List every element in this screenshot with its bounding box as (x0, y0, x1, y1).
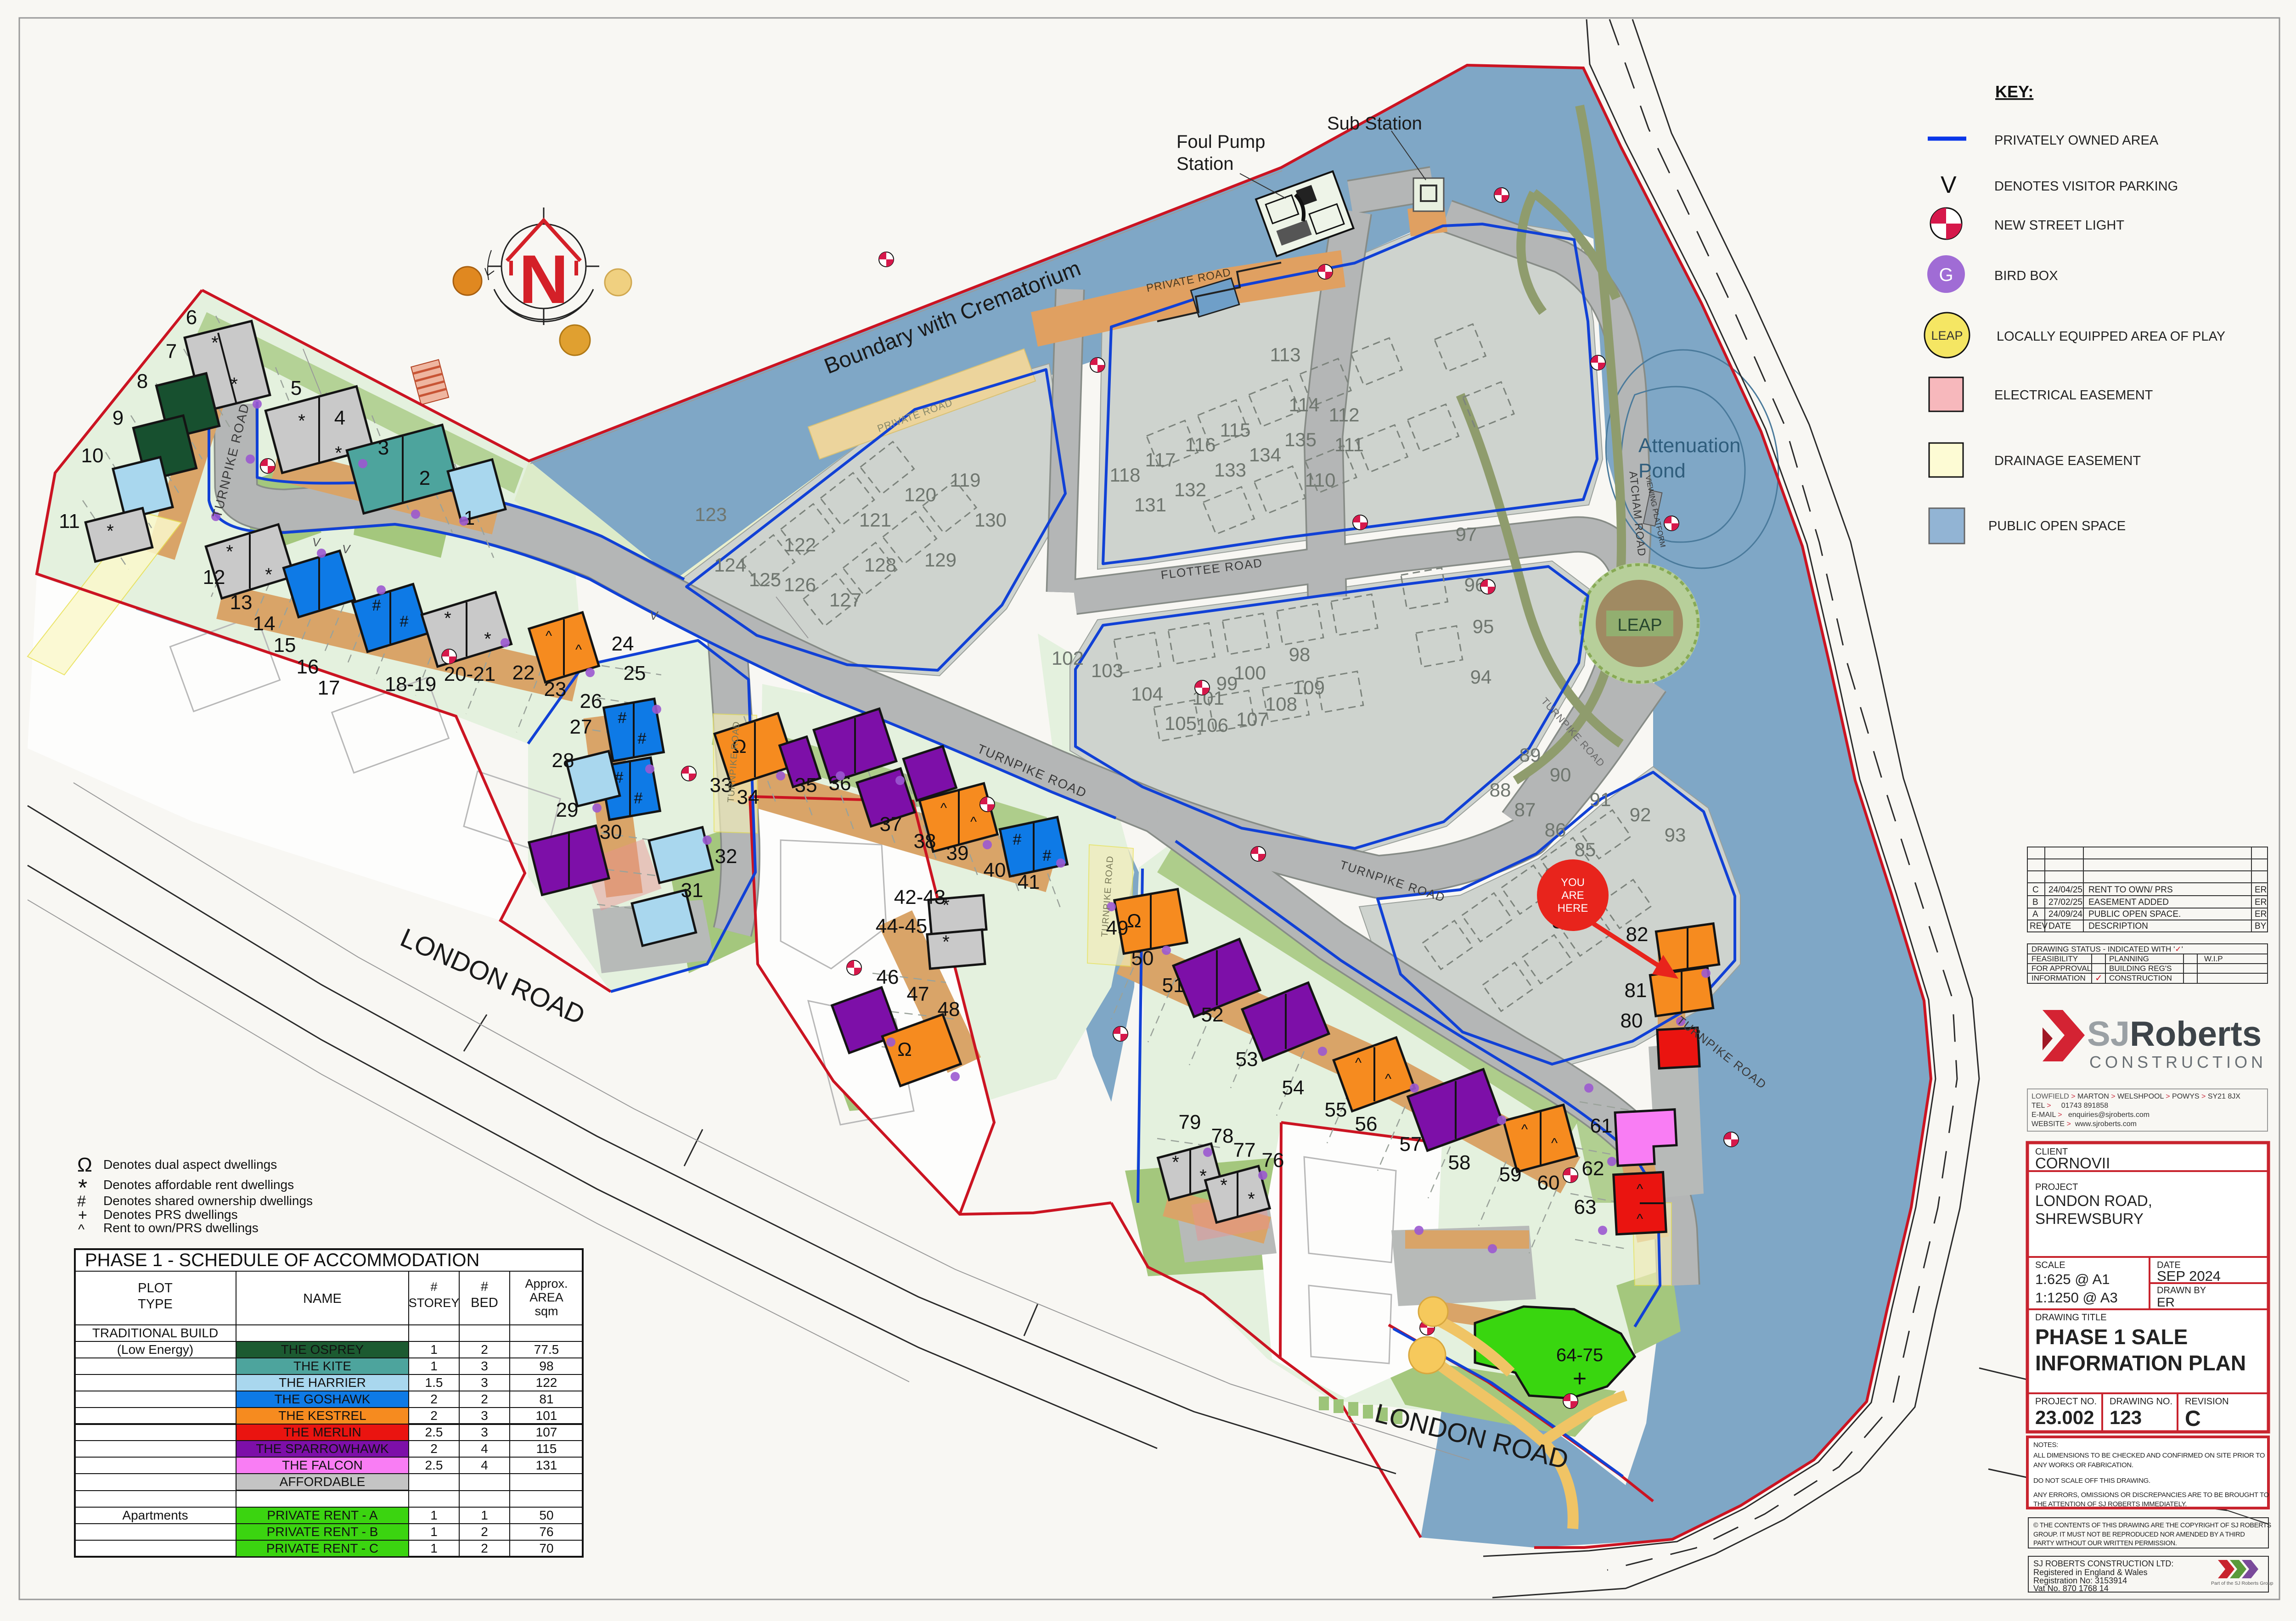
svg-text:THE GOSHAWK: THE GOSHAWK (275, 1392, 371, 1406)
svg-text:THE SPARROWHAWK: THE SPARROWHAWK (256, 1442, 389, 1456)
svg-text:118: 118 (1110, 464, 1141, 486)
svg-text:1: 1 (481, 1508, 488, 1522)
svg-text:CORNOVII: CORNOVII (2035, 1155, 2110, 1172)
svg-text:99: 99 (1216, 673, 1238, 694)
svg-text:55: 55 (1325, 1099, 1347, 1121)
svg-text:111: 111 (1334, 434, 1364, 455)
svg-text:109: 109 (1293, 677, 1325, 698)
svg-text:7: 7 (166, 340, 177, 363)
svg-text:*: * (226, 542, 233, 562)
svg-text:DESCRIPTION: DESCRIPTION (2088, 921, 2148, 931)
svg-text:DRAINAGE EASEMENT: DRAINAGE EASEMENT (1994, 454, 2141, 468)
svg-text:126: 126 (784, 574, 816, 595)
svg-text:Pond: Pond (1638, 460, 1686, 482)
svg-text:© THE CONTENTS OF THIS DRAWING: © THE CONTENTS OF THIS DRAWING ARE THE C… (2033, 1522, 2271, 1529)
svg-text:1: 1 (430, 1508, 438, 1522)
svg-text:39: 39 (946, 842, 969, 864)
svg-text:#: # (618, 709, 627, 727)
svg-text:8: 8 (137, 370, 148, 393)
svg-text:27: 27 (570, 716, 592, 738)
svg-text:DRAWN BY: DRAWN BY (2157, 1285, 2206, 1296)
svg-text:63: 63 (1574, 1196, 1597, 1218)
svg-text:86: 86 (1545, 819, 1566, 841)
svg-text:114: 114 (1289, 394, 1320, 415)
svg-text:*: * (1172, 1152, 1179, 1172)
svg-text:52: 52 (1201, 1004, 1224, 1026)
svg-text:*: * (211, 333, 219, 353)
svg-text:1: 1 (430, 1342, 438, 1357)
svg-text:PRIVATELY OWNED AREA: PRIVATELY OWNED AREA (1994, 133, 2159, 148)
svg-text:Sub Station: Sub Station (1327, 113, 1422, 134)
svg-text:Vat No. 870 1768 14: Vat No. 870 1768 14 (2033, 1584, 2109, 1593)
svg-text:*: * (231, 374, 238, 394)
svg-text:14: 14 (253, 612, 276, 635)
svg-text:13: 13 (230, 591, 253, 614)
svg-text:PHASE 1 SALE: PHASE 1 SALE (2035, 1325, 2188, 1349)
svg-text:TYPE: TYPE (138, 1297, 173, 1312)
svg-text:134: 134 (1249, 444, 1281, 466)
svg-text:FOR APPROVAL: FOR APPROVAL (2032, 964, 2091, 973)
svg-text:ANY ERRORS, OMISSIONS OR DISCR: ANY ERRORS, OMISSIONS OR DISCREPANCIES A… (2033, 1491, 2269, 1499)
svg-text:NOTES:: NOTES: (2033, 1441, 2058, 1449)
svg-text:42-43: 42-43 (894, 886, 946, 909)
svg-text:LOWFIELD > MARTON > WELSHPOOL: LOWFIELD > MARTON > WELSHPOOL > POWYS > … (2032, 1093, 2240, 1100)
svg-text:57: 57 (1400, 1133, 1422, 1155)
svg-text:ER: ER (2157, 1295, 2175, 1309)
svg-text:76: 76 (539, 1525, 553, 1539)
svg-text:2: 2 (419, 467, 430, 489)
svg-text:123: 123 (2110, 1407, 2142, 1428)
svg-text:YOU: YOU (1561, 876, 1585, 889)
svg-text:BUILDING REG'S: BUILDING REG'S (2109, 964, 2172, 973)
svg-text:53: 53 (1236, 1048, 1258, 1071)
svg-text:^: ^ (1637, 1212, 1643, 1227)
svg-text:G: G (1939, 265, 1953, 285)
svg-text:#: # (638, 730, 647, 747)
svg-text:V: V (650, 609, 659, 623)
svg-text:26: 26 (580, 690, 602, 712)
svg-text:2.5: 2.5 (425, 1425, 443, 1439)
svg-text:(Low Energy): (Low Energy) (117, 1342, 194, 1357)
svg-text:C: C (2185, 1407, 2201, 1431)
svg-text:#: # (430, 1280, 437, 1294)
svg-text:*: * (1220, 1175, 1227, 1195)
svg-text:35: 35 (795, 774, 817, 796)
svg-text:AFFORDABLE: AFFORDABLE (280, 1475, 366, 1489)
svg-text:2: 2 (430, 1442, 438, 1456)
svg-text:89: 89 (1519, 744, 1541, 766)
svg-text:5: 5 (291, 377, 302, 399)
svg-text:3: 3 (481, 1408, 488, 1423)
svg-text:59: 59 (1499, 1163, 1522, 1186)
svg-text:48: 48 (938, 998, 960, 1021)
svg-text:88: 88 (1490, 779, 1511, 801)
svg-text:ALL DIMENSIONS TO BE CHECKED A: ALL DIMENSIONS TO BE CHECKED AND CONFIRM… (2033, 1452, 2265, 1459)
svg-text:128: 128 (864, 554, 896, 576)
svg-text:ER: ER (2255, 885, 2267, 895)
svg-text:34: 34 (737, 786, 760, 808)
svg-text:SCALE: SCALE (2035, 1260, 2065, 1270)
svg-text:22: 22 (512, 662, 535, 684)
svg-text:^: ^ (78, 1222, 84, 1237)
svg-text:119: 119 (950, 469, 981, 491)
svg-text:DATE: DATE (2048, 921, 2071, 931)
svg-text:18-19: 18-19 (385, 673, 437, 696)
svg-text:*: * (1248, 1189, 1255, 1209)
svg-text:NAME: NAME (303, 1291, 342, 1306)
svg-text:#: # (481, 1279, 488, 1294)
svg-text:76: 76 (1262, 1149, 1284, 1172)
svg-text:sqm: sqm (535, 1304, 558, 1318)
svg-text:51: 51 (1162, 974, 1185, 997)
svg-text:20-21: 20-21 (444, 663, 496, 685)
svg-text:10: 10 (81, 444, 104, 467)
svg-text:27/02/25: 27/02/25 (2048, 897, 2082, 907)
svg-text:Part of the SJ Roberts Group: Part of the SJ Roberts Group (2211, 1581, 2273, 1586)
svg-text:16: 16 (297, 656, 319, 678)
svg-text:THE HARRIER: THE HARRIER (279, 1375, 366, 1390)
svg-text:102: 102 (1052, 647, 1084, 669)
svg-text:NEW STREET LIGHT: NEW STREET LIGHT (1994, 218, 2124, 233)
svg-text:91: 91 (1590, 789, 1611, 810)
svg-text:PRIVATE RENT - A: PRIVATE RENT - A (267, 1508, 377, 1522)
svg-text:44-45: 44-45 (876, 915, 928, 937)
svg-text:107: 107 (1236, 708, 1268, 730)
svg-text:Approx.: Approx. (525, 1277, 568, 1290)
svg-text:THE MERLIN: THE MERLIN (283, 1425, 361, 1439)
svg-text:INFORMATION PLAN: INFORMATION PLAN (2035, 1351, 2246, 1375)
svg-text:LOCALLY EQUIPPED AREA OF PLAY: LOCALLY EQUIPPED AREA OF PLAY (1997, 329, 2225, 344)
svg-text:79: 79 (1179, 1111, 1201, 1133)
svg-text:62: 62 (1582, 1157, 1604, 1180)
svg-text:24: 24 (612, 633, 634, 655)
svg-text:25: 25 (624, 662, 646, 684)
svg-text:11: 11 (59, 510, 80, 533)
svg-text:PHASE 1 - SCHEDULE OF ACCOMMOD: PHASE 1 - SCHEDULE OF ACCOMMODATION (85, 1250, 479, 1270)
svg-text:^: ^ (1355, 1055, 1362, 1071)
svg-text:INFORMATION: INFORMATION (2032, 974, 2086, 982)
svg-text:2: 2 (481, 1541, 488, 1555)
svg-text:^: ^ (1637, 1182, 1643, 1197)
svg-text:93: 93 (1665, 824, 1686, 846)
svg-text:92: 92 (1630, 804, 1651, 825)
svg-text:ER: ER (2255, 897, 2267, 907)
svg-text:^: ^ (575, 642, 582, 657)
svg-text:THE FALCON: THE FALCON (282, 1458, 363, 1472)
svg-text:LEAP: LEAP (1617, 616, 1662, 635)
svg-text:SJ ROBERTS CONSTRUCTION LTD:: SJ ROBERTS CONSTRUCTION LTD: (2033, 1559, 2173, 1568)
svg-text:THE OSPREY: THE OSPREY (281, 1342, 364, 1357)
svg-text:24/09/24: 24/09/24 (2048, 909, 2082, 919)
svg-text:KEY:: KEY: (1995, 82, 2033, 101)
svg-text:23.002: 23.002 (2035, 1407, 2094, 1428)
svg-text:6: 6 (186, 306, 197, 329)
svg-text:133: 133 (1214, 459, 1246, 481)
svg-text:AREA: AREA (529, 1290, 563, 1304)
svg-text:2: 2 (481, 1525, 488, 1539)
svg-text:70: 70 (539, 1541, 553, 1555)
svg-text:GROUP. IT MUST NOT BE REPRODUC: GROUP. IT MUST NOT BE REPRODUCED NOR AME… (2033, 1531, 2245, 1538)
svg-text:1:625 @ A1: 1:625 @ A1 (2035, 1271, 2110, 1287)
svg-text:2.5: 2.5 (425, 1458, 443, 1472)
svg-text:113: 113 (1270, 344, 1301, 365)
svg-text:17: 17 (318, 677, 340, 699)
svg-text:64-75: 64-75 (1556, 1345, 1603, 1365)
svg-text:V: V (312, 535, 321, 549)
svg-text:DENOTES VISITOR PARKING: DENOTES VISITOR PARKING (1994, 179, 2178, 194)
svg-text:B: B (2032, 897, 2038, 907)
svg-text:Denotes dual aspect dwellings: Denotes dual aspect dwellings (103, 1157, 277, 1172)
svg-text:107: 107 (536, 1425, 557, 1439)
svg-text:81: 81 (539, 1392, 553, 1406)
svg-text:30: 30 (600, 821, 622, 843)
svg-text:97: 97 (1456, 523, 1477, 545)
svg-text:4: 4 (334, 407, 345, 429)
svg-text:123: 123 (695, 504, 727, 525)
svg-text:PUBLIC OPEN SPACE.: PUBLIC OPEN SPACE. (2088, 909, 2181, 919)
svg-text:94: 94 (1470, 666, 1492, 688)
svg-text:122: 122 (784, 534, 816, 555)
svg-text:W.I.P: W.I.P (2204, 954, 2223, 963)
svg-text:*: * (444, 608, 451, 628)
svg-text:12: 12 (203, 566, 225, 589)
svg-text:100: 100 (1234, 662, 1266, 684)
svg-text:*: * (1199, 1166, 1207, 1186)
svg-text:DRAWING STATUS - INDICATED WIT: DRAWING STATUS - INDICATED WITH '✓' (2032, 945, 2183, 954)
svg-text:#: # (1043, 847, 1052, 864)
svg-text:E-MAIL > enquiries@sjroberts: E-MAIL > enquiries@sjroberts.com (2032, 1111, 2150, 1119)
svg-text:24/04/25: 24/04/25 (2048, 885, 2082, 895)
svg-text:117: 117 (1145, 449, 1176, 471)
svg-text:125: 125 (749, 569, 781, 590)
svg-text:3: 3 (481, 1375, 488, 1390)
svg-text:1: 1 (430, 1359, 438, 1373)
svg-text:106: 106 (1196, 714, 1228, 736)
svg-text:Ω: Ω (1127, 910, 1141, 931)
svg-text:CONSTRUCTION: CONSTRUCTION (2109, 974, 2172, 982)
svg-text:HERE: HERE (1558, 902, 1588, 914)
svg-text:*: * (335, 443, 342, 463)
svg-text:3: 3 (378, 437, 389, 459)
svg-text:*: * (265, 565, 272, 585)
svg-text:#: # (615, 769, 624, 786)
svg-text:PLANNING: PLANNING (2109, 954, 2149, 963)
svg-text:4: 4 (481, 1442, 488, 1456)
svg-text:77: 77 (1233, 1139, 1256, 1161)
svg-text:130: 130 (974, 509, 1007, 531)
svg-text:BY: BY (2255, 921, 2267, 931)
svg-text:115: 115 (1220, 419, 1251, 441)
svg-text:*: * (484, 629, 491, 649)
svg-text:DO NOT SCALE OFF THIS DRAWING.: DO NOT SCALE OFF THIS DRAWING. (2033, 1477, 2150, 1485)
svg-text:1.5: 1.5 (425, 1375, 443, 1390)
svg-text:LEAP: LEAP (1931, 329, 1963, 342)
svg-text:^: ^ (1385, 1071, 1391, 1087)
svg-text:ARE: ARE (1561, 889, 1584, 902)
svg-text:131: 131 (1134, 494, 1166, 516)
svg-text:SEP 2024: SEP 2024 (2157, 1268, 2221, 1284)
svg-text:1:1250 @ A3: 1:1250 @ A3 (2035, 1290, 2118, 1306)
svg-text:Rent to own/PRS dwellings: Rent to own/PRS dwellings (103, 1221, 259, 1235)
svg-text:1: 1 (430, 1525, 438, 1539)
svg-text:^: ^ (940, 801, 947, 816)
svg-text:Denotes shared ownership dwell: Denotes shared ownership dwellings (103, 1194, 313, 1208)
svg-text:121: 121 (859, 509, 891, 531)
svg-text:28: 28 (552, 749, 574, 772)
svg-text:^: ^ (1521, 1122, 1528, 1137)
svg-text:3: 3 (481, 1425, 488, 1439)
svg-text:41: 41 (1018, 871, 1040, 893)
svg-text:THE KITE: THE KITE (293, 1359, 351, 1373)
svg-text:120: 120 (904, 484, 936, 505)
svg-text:#: # (372, 597, 381, 614)
svg-text:+: + (78, 1206, 87, 1224)
svg-text:^: ^ (546, 628, 552, 644)
svg-text:REV: REV (2030, 921, 2048, 931)
svg-text:23: 23 (544, 678, 567, 701)
svg-text:#: # (400, 613, 409, 630)
svg-text:50: 50 (539, 1508, 553, 1522)
svg-text:56: 56 (1355, 1113, 1378, 1135)
svg-text:80: 80 (1621, 1010, 1643, 1032)
svg-text:37: 37 (880, 813, 902, 836)
svg-text:Foul Pump: Foul Pump (1176, 132, 1265, 152)
svg-text:103: 103 (1091, 660, 1123, 681)
svg-text:PROJECT: PROJECT (2035, 1182, 2078, 1192)
svg-text:Attenuation: Attenuation (1638, 434, 1741, 457)
svg-text:61: 61 (1590, 1115, 1613, 1137)
svg-text:60: 60 (1537, 1172, 1560, 1194)
svg-text:STOREY: STOREY (409, 1296, 460, 1310)
svg-text:WEBSITE > www.sjroberts.com: WEBSITE > www.sjroberts.com (2032, 1120, 2137, 1128)
svg-text:2: 2 (430, 1408, 438, 1423)
svg-text:50: 50 (1131, 947, 1154, 970)
svg-text:90: 90 (1550, 764, 1571, 785)
svg-text:1: 1 (430, 1541, 438, 1555)
svg-text:Denotes PRS dwellings: Denotes PRS dwellings (103, 1207, 238, 1222)
svg-text:46: 46 (877, 966, 899, 988)
svg-text:*: * (298, 411, 305, 431)
svg-text:95: 95 (1473, 616, 1494, 637)
svg-text:58: 58 (1448, 1151, 1471, 1174)
svg-text:RENT TO OWN/ PRS: RENT TO OWN/ PRS (2088, 885, 2173, 895)
svg-text:104: 104 (1131, 683, 1163, 705)
svg-text:101: 101 (536, 1408, 557, 1423)
svg-text:#: # (1013, 831, 1022, 848)
svg-text:32: 32 (715, 845, 737, 868)
svg-text:Registered in England & Wales: Registered in England & Wales (2033, 1568, 2147, 1577)
svg-text:3: 3 (481, 1359, 488, 1373)
svg-text:82: 82 (1626, 923, 1649, 946)
svg-text:V: V (1941, 172, 1957, 198)
svg-text:+: + (1573, 1365, 1587, 1392)
svg-text:✓: ✓ (2095, 973, 2103, 983)
svg-text:54: 54 (1282, 1077, 1305, 1099)
svg-text:#: # (634, 790, 643, 807)
svg-text:131: 131 (536, 1458, 557, 1472)
svg-text:116: 116 (1185, 434, 1216, 455)
svg-text:REVISION: REVISION (2185, 1397, 2229, 1407)
svg-text:ELECTRICAL EASEMENT: ELECTRICAL EASEMENT (1994, 388, 2153, 403)
svg-text:38: 38 (914, 830, 936, 853)
svg-text:ANY WORKS OR FABRICATION.: ANY WORKS OR FABRICATION. (2033, 1461, 2133, 1469)
svg-text:A: A (2032, 909, 2038, 919)
svg-text:TEL > 01743 891858: TEL > 01743 891858 (2032, 1102, 2108, 1110)
svg-text:40: 40 (984, 859, 1006, 881)
svg-text:15: 15 (274, 634, 296, 656)
svg-text:9: 9 (113, 407, 124, 429)
svg-text:C: C (2032, 885, 2039, 895)
svg-text:LONDON ROAD,: LONDON ROAD, (2035, 1192, 2152, 1209)
svg-text:98: 98 (1289, 644, 1311, 665)
svg-text:DRAWING NO.: DRAWING NO. (2110, 1397, 2172, 1407)
svg-text:THE KESTREL: THE KESTREL (278, 1408, 366, 1423)
svg-text:2: 2 (481, 1342, 488, 1357)
svg-text:132: 132 (1174, 479, 1206, 500)
svg-text:77.5: 77.5 (534, 1342, 559, 1357)
svg-text:THE ATTENTION OF SJ ROBERTS IM: THE ATTENTION OF SJ ROBERTS IMMEDIATELY. (2033, 1500, 2187, 1508)
svg-text:SHREWSBURY: SHREWSBURY (2035, 1210, 2144, 1227)
svg-text:Station: Station (1176, 154, 1234, 174)
svg-text:127: 127 (829, 589, 861, 611)
svg-text:PROJECT NO.: PROJECT NO. (2035, 1397, 2097, 1407)
svg-text:2: 2 (481, 1392, 488, 1406)
svg-text:*: * (107, 521, 114, 541)
svg-text:81: 81 (1625, 979, 1647, 1002)
svg-text:31: 31 (681, 879, 703, 902)
svg-text:PRIVATE RENT - B: PRIVATE RENT - B (267, 1525, 378, 1539)
svg-text:85: 85 (1575, 839, 1596, 860)
svg-text:Ω: Ω (77, 1154, 92, 1176)
svg-text:112: 112 (1329, 404, 1360, 426)
svg-text:47: 47 (907, 983, 929, 1005)
svg-text:TRADITIONAL BUILD: TRADITIONAL BUILD (92, 1326, 218, 1340)
svg-text:PARTY WITHOUT OUR WRITTEN PERM: PARTY WITHOUT OUR WRITTEN PERMISSION. (2033, 1540, 2177, 1547)
svg-text:PRIVATE RENT - C: PRIVATE RENT - C (266, 1541, 378, 1555)
svg-text:FEASIBILITY: FEASIBILITY (2032, 954, 2078, 963)
svg-text:ER: ER (2255, 909, 2267, 919)
svg-text:129: 129 (924, 549, 957, 571)
svg-text:4: 4 (481, 1458, 488, 1472)
svg-text:Denotes affordable rent dwelli: Denotes affordable rent dwellings (103, 1178, 294, 1192)
svg-text:*: * (942, 932, 950, 952)
svg-text:98: 98 (539, 1359, 553, 1373)
svg-text:SJRoberts: SJRoberts (2087, 1015, 2262, 1054)
svg-text:135: 135 (1284, 429, 1317, 450)
svg-text:^: ^ (1551, 1136, 1558, 1151)
svg-text:CONSTRUCTION: CONSTRUCTION (2089, 1053, 2267, 1071)
svg-text:DRAWING TITLE: DRAWING TITLE (2035, 1313, 2107, 1323)
svg-text:BIRD BOX: BIRD BOX (1994, 269, 2058, 283)
svg-text:PUBLIC OPEN SPACE: PUBLIC OPEN SPACE (1988, 519, 2126, 533)
svg-text:PLOT: PLOT (138, 1281, 173, 1296)
svg-text:110: 110 (1305, 469, 1336, 491)
svg-text:115: 115 (536, 1442, 557, 1456)
svg-text:78: 78 (1211, 1125, 1234, 1147)
svg-text:BED: BED (471, 1296, 498, 1310)
svg-text:^: ^ (970, 814, 977, 830)
svg-text:29: 29 (556, 799, 579, 821)
svg-text:EASEMENT ADDED: EASEMENT ADDED (2088, 897, 2169, 907)
svg-text:V: V (342, 542, 351, 556)
svg-text:Apartments: Apartments (122, 1508, 188, 1522)
svg-text:N: N (519, 241, 568, 318)
svg-text:105: 105 (1165, 712, 1197, 734)
svg-text:Ω: Ω (897, 1038, 912, 1060)
svg-text:87: 87 (1514, 799, 1536, 820)
svg-text:122: 122 (536, 1375, 557, 1390)
svg-text:2: 2 (430, 1392, 438, 1406)
